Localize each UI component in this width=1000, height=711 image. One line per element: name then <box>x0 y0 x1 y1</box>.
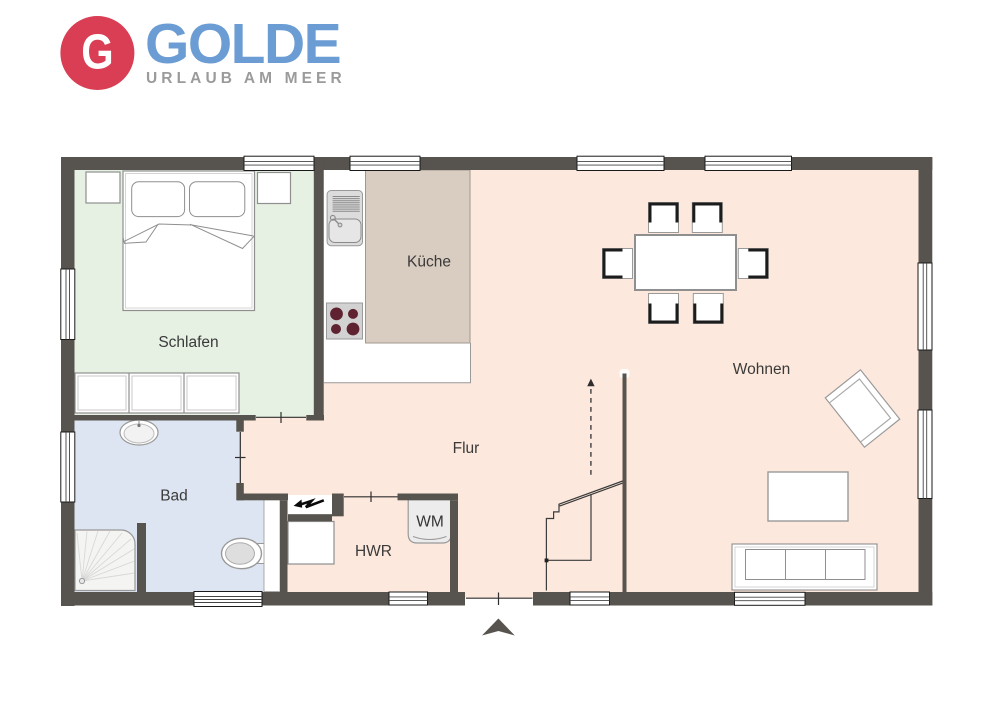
svg-text:HWR: HWR <box>355 543 392 560</box>
svg-text:Wohnen: Wohnen <box>733 361 790 378</box>
svg-text:URLAUB AM MEER: URLAUB AM MEER <box>146 70 346 87</box>
svg-text:GOLDE: GOLDE <box>145 12 340 76</box>
svg-text:Schlafen: Schlafen <box>158 334 218 351</box>
svg-text:Flur: Flur <box>453 440 480 457</box>
svg-text:Küche: Küche <box>407 254 451 271</box>
svg-text:WM: WM <box>416 514 444 531</box>
svg-text:G: G <box>81 24 113 79</box>
svg-text:Bad: Bad <box>160 488 188 505</box>
